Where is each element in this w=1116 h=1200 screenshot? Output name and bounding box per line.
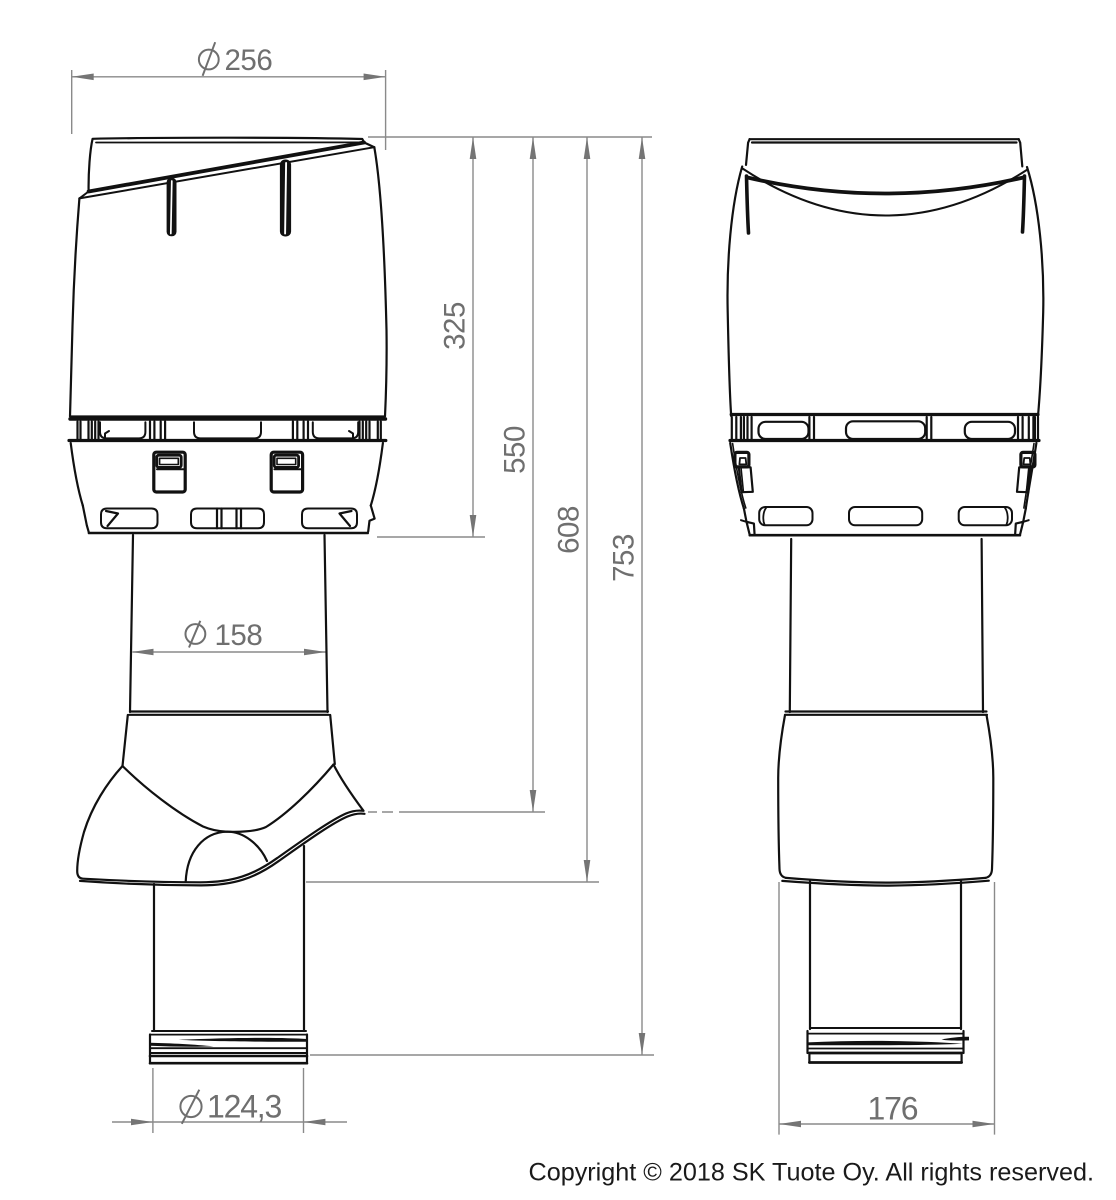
svg-text:176: 176 (868, 1091, 918, 1127)
svg-text:256: 256 (225, 44, 273, 77)
svg-text:753: 753 (608, 534, 641, 582)
svg-text:Copyright © 2018 SK Tuote Oy.: Copyright © 2018 SK Tuote Oy. All rights… (529, 1159, 1095, 1187)
svg-text:550: 550 (499, 426, 532, 474)
svg-text:325: 325 (439, 302, 472, 350)
svg-text:124,3: 124,3 (207, 1089, 281, 1125)
svg-text:158: 158 (215, 619, 263, 652)
svg-text:608: 608 (553, 506, 586, 554)
